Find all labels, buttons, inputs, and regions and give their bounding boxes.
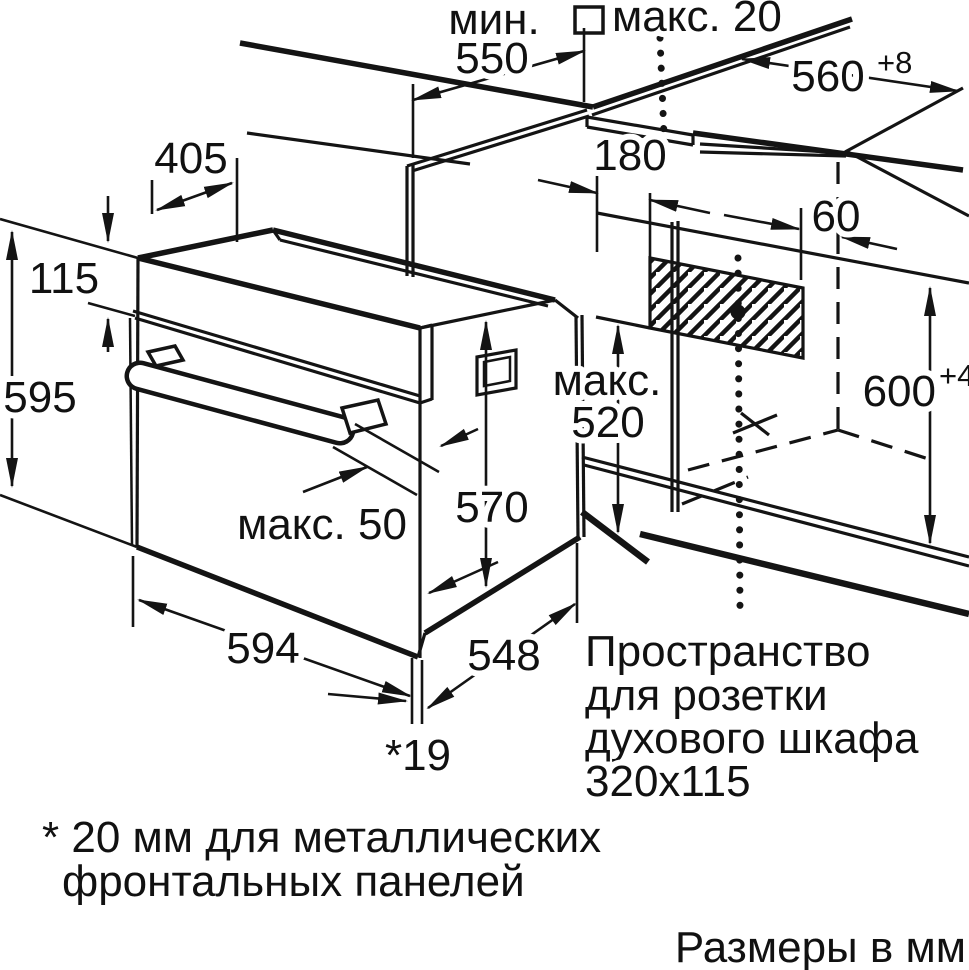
label-600-tol: +4: [939, 358, 969, 393]
socket-note-line4: 320x115: [585, 757, 751, 806]
square-symbol: [575, 7, 603, 33]
label-min-550: 550: [455, 34, 528, 83]
footnote-line2: фронтальных панелей: [62, 857, 525, 906]
label-600: 600: [863, 367, 936, 416]
socket-note-text: Пространство для розетки духового шкафа …: [585, 627, 919, 806]
oven-handle: [140, 346, 386, 433]
units-note: Размеры в мм: [675, 923, 966, 970]
label-115: 115: [29, 254, 99, 303]
label-max-50: макс. 50: [237, 500, 407, 549]
countertop-lines: [240, 19, 969, 216]
label-180: 180: [593, 131, 666, 180]
label-594: 594: [226, 624, 299, 673]
label-520: 520: [571, 398, 644, 447]
label-560: 560: [791, 52, 864, 101]
label-570: 570: [455, 483, 528, 532]
socket-note-line2: для розетки: [585, 671, 828, 720]
socket-note-line1: Пространство: [585, 627, 870, 676]
label-star-19: *19: [385, 731, 451, 780]
label-405: 405: [154, 134, 227, 183]
footnote-line1: * 20 мм для металлических: [42, 813, 601, 862]
label-max-20: макс. 20: [612, 0, 782, 41]
label-595: 595: [3, 373, 76, 422]
socket-note-line3: духового шкафа: [585, 714, 919, 763]
oven-outline: [130, 230, 584, 658]
niche-lines: [407, 110, 969, 614]
footnote-text: * 20 мм для металлических фронтальных па…: [42, 813, 601, 906]
label-60: 60: [812, 192, 861, 241]
oven-installation-drawing: мин. 550 макс. 20 560 +8 405 115 595 180…: [0, 0, 969, 970]
installation-diagram-canvas: мин. 550 макс. 20 560 +8 405 115 595 180…: [0, 0, 969, 970]
socket-space-hatched-area: [596, 258, 803, 358]
label-548: 548: [467, 631, 540, 680]
label-560-tol: +8: [877, 45, 912, 80]
